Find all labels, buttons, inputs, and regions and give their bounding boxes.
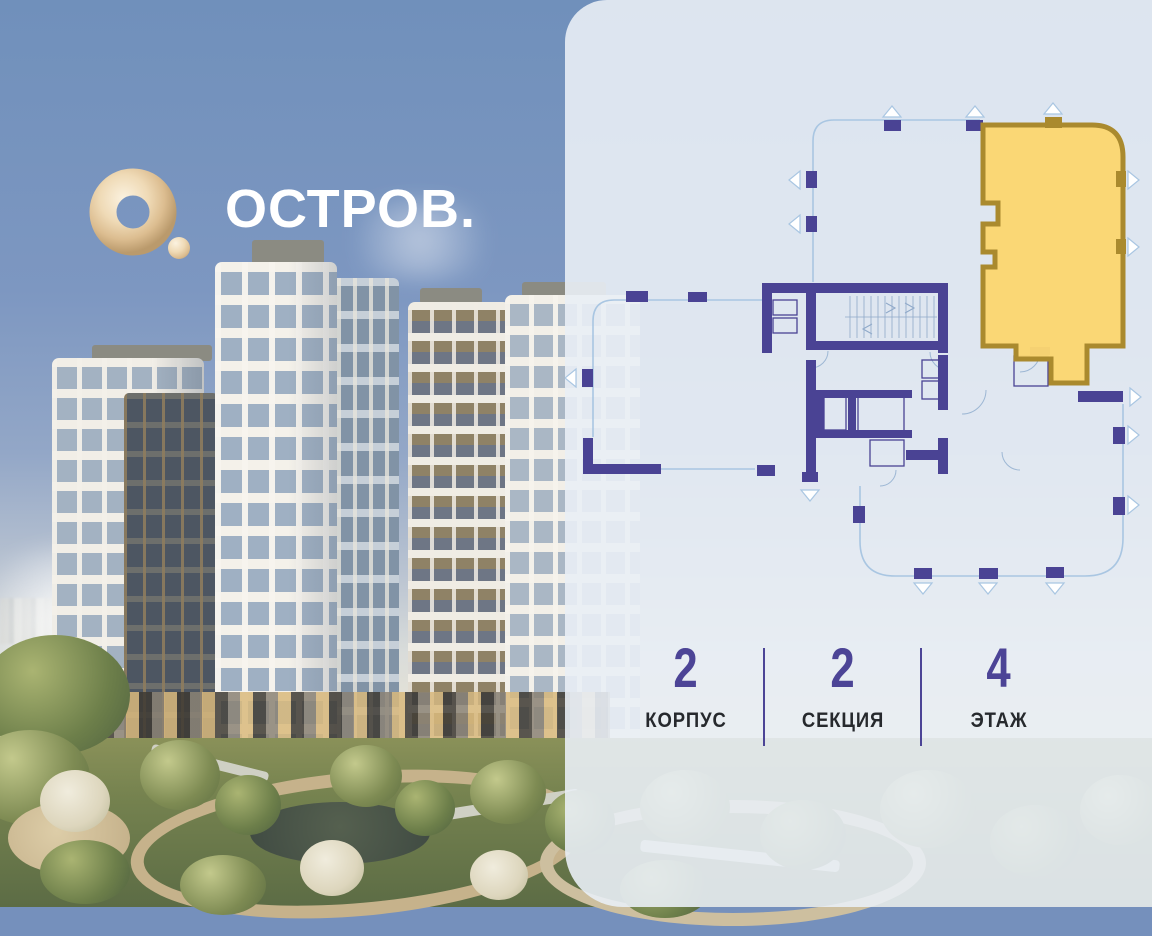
stat-section-value: 2 bbox=[830, 640, 854, 696]
tree bbox=[395, 780, 455, 836]
stat-building: 2 КОРПУС bbox=[611, 640, 761, 733]
blossom-tree bbox=[470, 850, 528, 900]
blossom-tree bbox=[40, 770, 110, 832]
floorplan-panel: 2 КОРПУС 2 СЕКЦИЯ 4 ЭТАЖ bbox=[565, 0, 1152, 907]
brand-logo: ОСТРОВ. bbox=[88, 160, 508, 270]
brand-name: ОСТРОВ. bbox=[225, 181, 476, 237]
stat-section-label: СЕКЦИЯ bbox=[777, 709, 909, 733]
gold-torus-icon bbox=[88, 160, 198, 264]
stair-hatch bbox=[845, 296, 937, 338]
tree bbox=[40, 840, 130, 904]
stat-divider bbox=[763, 648, 765, 746]
stat-floor-label: ЭТАЖ bbox=[933, 709, 1065, 733]
highlighted-apartment[interactable] bbox=[983, 125, 1123, 383]
stat-building-value: 2 bbox=[674, 640, 698, 696]
door-arcs bbox=[811, 351, 1040, 486]
tree bbox=[180, 855, 266, 915]
stat-divider bbox=[920, 648, 922, 746]
floorplan bbox=[565, 0, 1152, 635]
unit-stats: 2 КОРПУС 2 СЕКЦИЯ 4 ЭТАЖ bbox=[611, 640, 1074, 750]
tree bbox=[215, 775, 281, 835]
blossom-tree bbox=[300, 840, 364, 896]
tree bbox=[330, 745, 402, 807]
stat-floor: 4 ЭТАЖ bbox=[924, 640, 1074, 733]
tree bbox=[140, 740, 220, 810]
stat-building-label: КОРПУС bbox=[620, 709, 752, 733]
tree bbox=[470, 760, 546, 824]
stat-floor-value: 4 bbox=[987, 640, 1011, 696]
stat-section: 2 СЕКЦИЯ bbox=[768, 640, 918, 733]
